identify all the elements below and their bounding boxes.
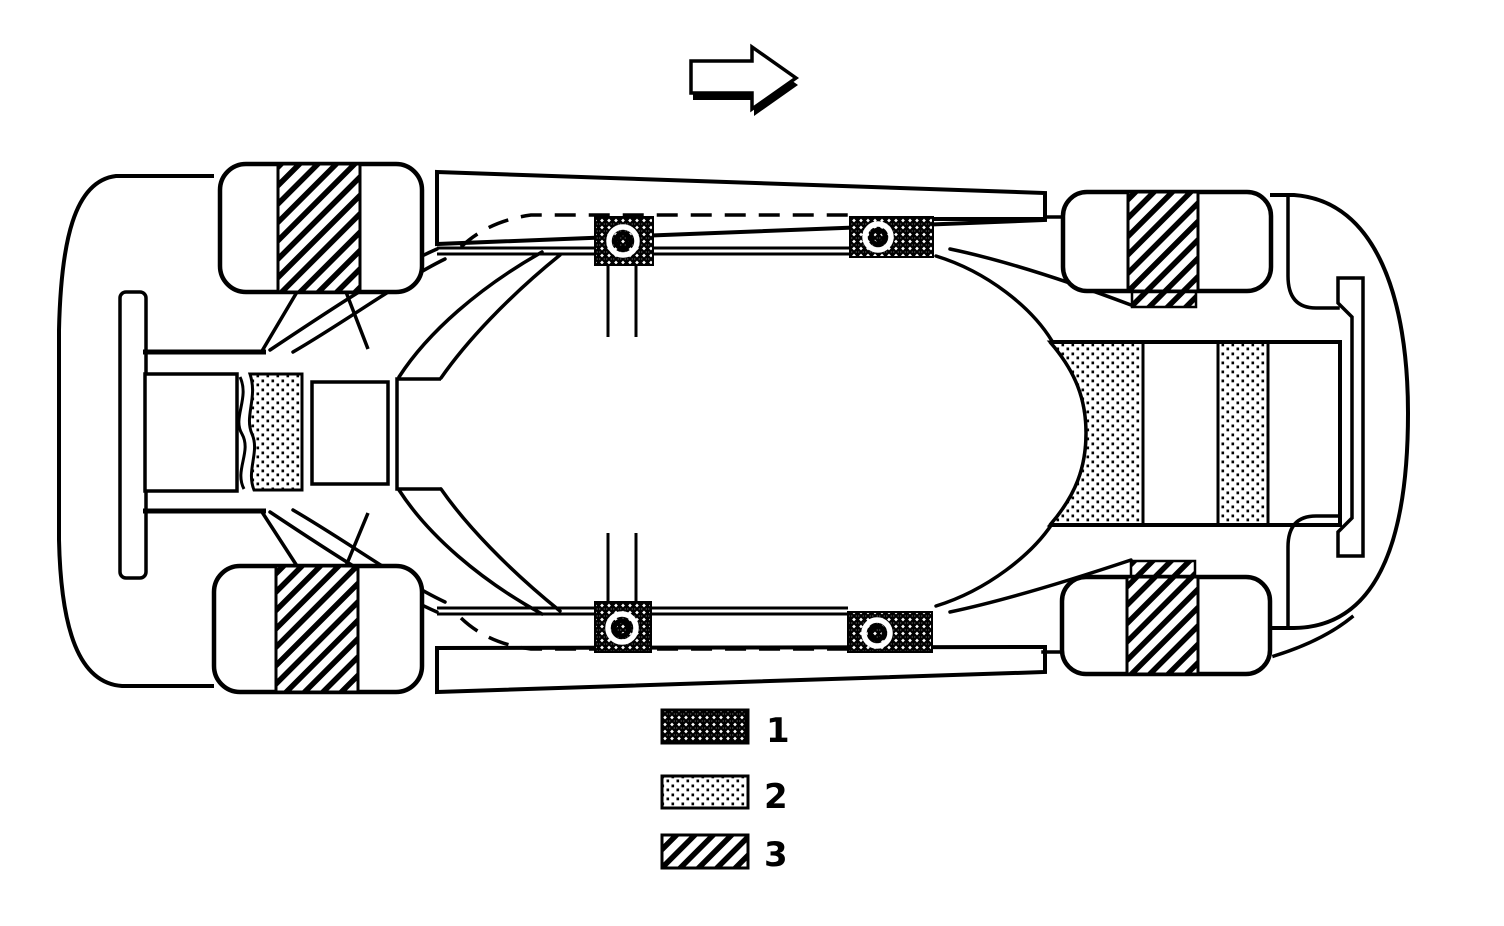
legend-swatch-dot-stipple xyxy=(662,776,748,808)
legend-label-1: 1 xyxy=(766,711,790,751)
tunnel-neck xyxy=(397,379,441,489)
legend-item-2: 2 xyxy=(662,776,788,817)
strut-lines-bottom xyxy=(608,533,636,602)
legend: 1 2 3 xyxy=(662,710,790,875)
wheel-rear-bottom-hatch-band xyxy=(276,566,358,692)
rear-axle-box-right xyxy=(312,382,388,484)
cowl-bracket-bottom xyxy=(1288,516,1338,625)
legend-item-1: 1 xyxy=(662,710,790,751)
wheel-front-top-hatch-band xyxy=(1128,192,1198,291)
body-mounts xyxy=(595,217,933,652)
wheel-front-bottom-hatch-band xyxy=(1127,577,1198,674)
strut-lines-top xyxy=(608,265,636,337)
direction-of-travel-arrow xyxy=(691,47,798,116)
front-body-cap xyxy=(1262,195,1408,628)
floorpan-curves xyxy=(270,249,1131,614)
wheel-front-bottom-mount-strip xyxy=(1131,561,1195,577)
legend-label-3: 3 xyxy=(764,835,788,875)
legend-label-2: 2 xyxy=(764,777,788,817)
body-mount-top-right xyxy=(850,217,933,257)
body-mount-bottom-right xyxy=(848,612,932,652)
legend-swatch-dense-stipple xyxy=(662,710,748,743)
diagram-page: 1 2 3 xyxy=(0,0,1504,926)
front-lower-approach xyxy=(1274,617,1352,656)
engine-bay xyxy=(1050,342,1340,525)
wheel-front-top-mount-strip xyxy=(1132,291,1196,307)
rocker-sill-bottom xyxy=(437,647,1045,692)
body-mount-top-left xyxy=(595,217,653,265)
rear-bumper-beam xyxy=(120,292,146,578)
body-mount-bottom-left xyxy=(595,602,651,652)
engine-bay-damping-band-left xyxy=(1050,342,1143,525)
wheel-link-lines-bottom xyxy=(262,512,368,566)
rear-axle-damping-piece xyxy=(249,374,302,490)
rear-axle-assembly xyxy=(120,292,441,578)
car-underbody-diagram: 1 2 3 xyxy=(0,0,1504,926)
cowl-bracket-top xyxy=(1288,198,1338,308)
rocker-sill-top xyxy=(437,172,1045,244)
engine-bay-damping-band-right xyxy=(1218,342,1268,525)
legend-item-3: 3 xyxy=(662,835,788,875)
wheel-rear-top-hatch-band xyxy=(278,164,360,292)
legend-swatch-diagonal-hatch xyxy=(662,835,748,868)
rear-axle-box-left xyxy=(145,374,237,491)
axle-wavy-wall xyxy=(239,377,245,489)
